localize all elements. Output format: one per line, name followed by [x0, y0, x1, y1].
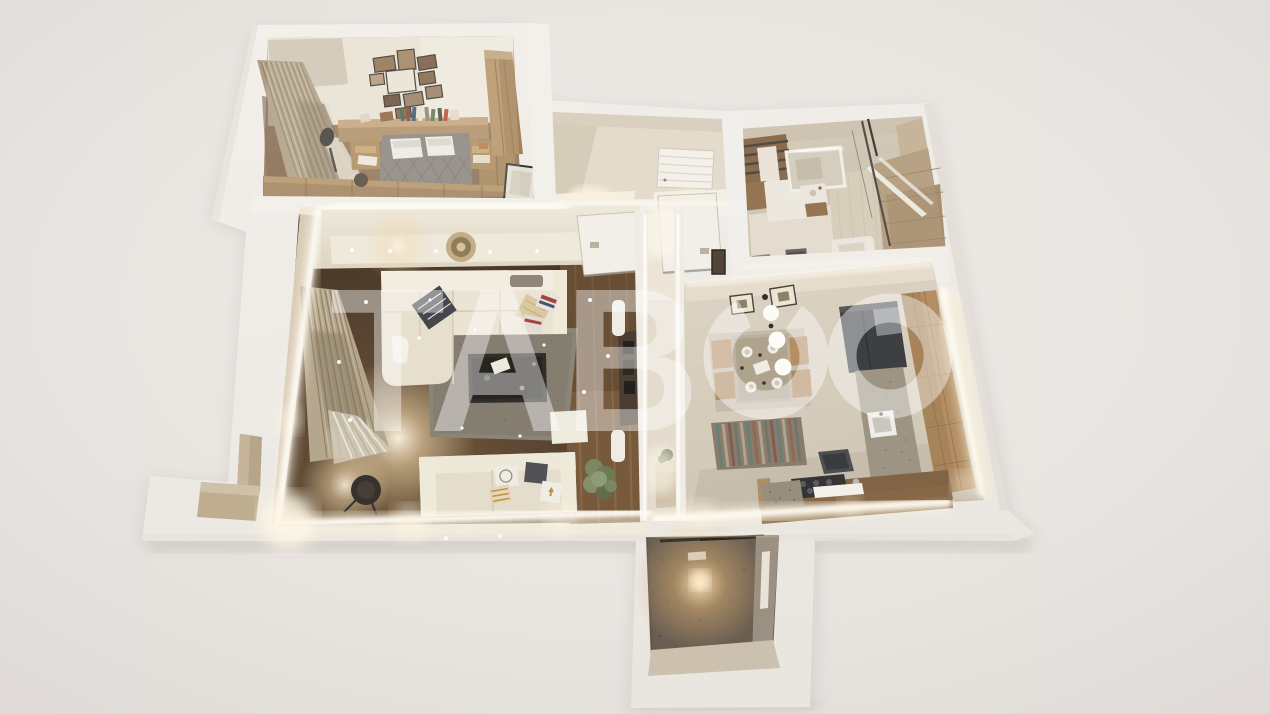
svg-text:TAB: TAB [330, 246, 698, 475]
